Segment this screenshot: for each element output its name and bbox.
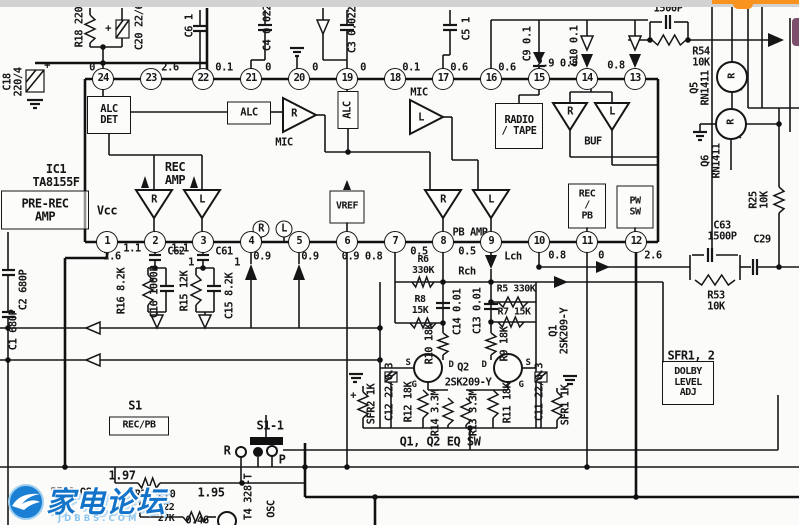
pin12-value: 2.6 [644, 250, 661, 261]
c3-label: C3 0.022 [347, 7, 358, 54]
pin19-value: 0 [360, 62, 366, 73]
pin-13: 13 [624, 68, 646, 90]
r11-label: R11 18K [502, 383, 513, 424]
s1-recpb-box: REC/PB [109, 417, 169, 436]
alc-det-box: ALC DET [87, 96, 131, 134]
value-197: 1.97 [109, 470, 136, 483]
dolby-box: DOLBY LEVEL ADJ [662, 361, 714, 405]
amp-mic-l-letter: L [418, 112, 424, 123]
pin10-value: 0.8 [548, 250, 565, 261]
rec-l-letter: L [199, 194, 205, 205]
q5-inner-letter: R [728, 73, 739, 79]
c14-label: C14 0.01 [452, 289, 463, 336]
pin-6: 6 [336, 231, 358, 253]
pin20-value: 0 [312, 62, 318, 73]
pin9-value: Lch [504, 251, 521, 262]
sfr2-plus: + [350, 390, 356, 401]
pin-2: 2 [144, 231, 166, 253]
buf-l-letter: L [609, 106, 615, 117]
r6-label: R6 330K [412, 255, 434, 277]
r7-label: R7 15K [497, 308, 530, 319]
browser-chrome-tab[interactable] [733, 0, 753, 9]
pin8-value: 0.5 [458, 246, 475, 257]
r25-label: R25 10K [749, 191, 772, 208]
pin13-value: 0.8 [607, 60, 624, 71]
value-195: 1.95 [198, 487, 225, 500]
radio-tape-box: RADIO / TAPE [495, 103, 543, 149]
c20-label: C20 22/6 [134, 4, 145, 51]
c61-value: 1 [234, 257, 240, 268]
c62-value: 1 [188, 257, 194, 268]
c2-label: C2 680P [18, 270, 29, 311]
pre-rec-amp-box: PRE-REC AMP [1, 191, 89, 230]
pin6-value: 0.9 0.8 [342, 251, 383, 262]
alc-box: ALC [227, 102, 271, 125]
r15-label: R15 12K [179, 271, 190, 312]
pin17-value: 0.6 [450, 62, 467, 73]
eq-sw-label: Q1, Q2 EQ SW [400, 436, 481, 449]
pin-8: 8 [432, 231, 454, 253]
pin11-value: 0 [598, 250, 604, 261]
q6-inner-letter: R [727, 119, 738, 125]
pin21-value: 0 [265, 62, 271, 73]
pin5-value: 0.9 [301, 251, 318, 262]
mic-r-label: MIC [275, 137, 292, 148]
c12-label: C12 22/6.3 [384, 363, 395, 421]
pin-15: 15 [528, 68, 550, 90]
r8-label: R8 15K [412, 295, 429, 317]
q2-part-label: 2SK209-Y [445, 377, 492, 388]
r53-label: R53 10K [707, 291, 724, 314]
q1-s-label: S [526, 359, 531, 369]
pin-20: 20 [288, 68, 310, 90]
rec-r-letter: R [151, 194, 157, 205]
s1-1-label: S1-1 [257, 420, 284, 433]
buf-label: BUF [584, 136, 601, 147]
vref-box: VREF [330, 191, 365, 224]
c18-label: C18 220/4 [3, 67, 26, 96]
c15-label: C15 8.2K [224, 273, 235, 320]
c29-label: C29 [753, 234, 770, 245]
pin-14: 14 [576, 68, 598, 90]
switch-r-label: R [224, 445, 231, 458]
r12-label: R12 18K [403, 382, 414, 423]
pin-22: 22 [192, 68, 214, 90]
pin-1: 1 [96, 231, 118, 253]
pb-r-letter: R [440, 194, 446, 205]
pin-19: 19 [336, 68, 358, 90]
buf-r-letter: R [567, 106, 573, 117]
c4-label: C4 0.022 [262, 5, 273, 52]
pin-16: 16 [480, 68, 502, 90]
q6-label: Q6 RN1411 [701, 144, 724, 179]
alc-vbox: ALC [338, 91, 359, 129]
scan-edge-band [0, 0, 799, 7]
c20-plus: + [105, 23, 111, 34]
c13-label: C13 0.01 [472, 288, 483, 335]
rec-amp-label: REC AMP [165, 161, 185, 187]
c9-label: C9 0.1 [522, 27, 533, 62]
r5-label: R5 330K [497, 285, 536, 296]
s1-label: S1 [128, 400, 141, 413]
osc-label: OSC [266, 500, 277, 517]
sfr1-label: SFR1 1K [560, 385, 571, 426]
t4-label: T4 328-T [243, 474, 254, 521]
pin-23: 23 [140, 68, 162, 90]
browser-chrome-bar[interactable] [712, 0, 799, 4]
pb-l-letter: L [488, 194, 494, 205]
q2-label: Q2 [457, 362, 469, 373]
schematic-page: R18 220C20 22/6+C18 220/4+C6 1C4 0.022C3… [0, 0, 799, 525]
watermark-text: 家电论坛 [46, 488, 166, 517]
amp-mic-r-letter: R [291, 108, 297, 119]
watermark-logo-icon [6, 482, 46, 522]
q1-label: Q1 2SK209-Y [549, 308, 572, 355]
r9-label: R9 18K [499, 327, 510, 362]
c18-plus: + [44, 60, 50, 71]
q5-label: Q5 RN1411 [690, 71, 713, 106]
r54-label: R54 10K [692, 47, 709, 70]
pin-18: 18 [384, 68, 406, 90]
pin4-value: 0.9 [253, 251, 270, 262]
pin-17: 17 [432, 68, 454, 90]
pin-11: 11 [576, 231, 598, 253]
pw-sw-box: PW SW [617, 186, 654, 229]
q2-s-label: S [406, 359, 411, 369]
q2-d-label: D [449, 361, 454, 371]
watermark: 家电论坛 JDBBS.COM [6, 482, 166, 522]
value-046: 0.46 [185, 515, 208, 525]
rch-label: Rch [458, 266, 475, 277]
pin-4: 4 [240, 231, 262, 253]
pin18-value: 0.1 [402, 62, 419, 73]
rec-pb-box: REC / PB [568, 184, 606, 229]
schematic-labels-layer: R18 220C20 22/6+C18 220/4+C6 1C4 0.022C3… [0, 0, 799, 525]
pin1-value: 2.6 [103, 251, 120, 262]
pin1-2-value: 1.1 [123, 243, 140, 254]
r18-label: R18 220 [74, 7, 85, 48]
c6-label: C6 1 [184, 14, 195, 37]
c1-label: C1 680P [8, 310, 19, 351]
pin16-value: 0.6 [498, 62, 515, 73]
watermark-subtext: JDBBS.COM [58, 514, 139, 524]
switch-p-label: P [279, 454, 286, 467]
r10-label: R10 18K [424, 324, 435, 365]
pin-12: 12 [625, 231, 647, 253]
pin-3: 3 [192, 231, 214, 253]
pin-21: 21 [240, 68, 262, 90]
r13-label: R13 3.3M [468, 390, 479, 437]
vcc-label: Vcc [97, 205, 117, 218]
c5-label: C5 1 [461, 17, 472, 40]
c11-label: C11 22/6.3 [534, 363, 545, 421]
q1-g-label: G [519, 381, 524, 391]
pin-10: 10 [528, 231, 550, 253]
sfr2-label: SFR2 1K [366, 384, 377, 425]
r16-label: R16 8.2K [116, 268, 127, 315]
c61-label: C61 [215, 246, 232, 257]
pin23-value: 2.6 [161, 62, 178, 73]
q1-d-label: D [482, 361, 487, 371]
ic1-label: IC1 TA8155F [32, 163, 79, 189]
pin-5: 5 [288, 231, 310, 253]
c62-label: C62 [167, 246, 184, 257]
pin22-value: 0.1 [215, 62, 232, 73]
pin-9: 9 [480, 231, 502, 253]
side-scroll-tab[interactable] [792, 18, 799, 46]
pin-7: 7 [384, 231, 406, 253]
c63-label: C63 1500P [707, 221, 736, 244]
c16-label: C16 1000P [149, 266, 160, 318]
pin-24: 24 [92, 68, 114, 90]
mic-l-label: MIC [410, 87, 427, 98]
r14-label: R14 3.3M [430, 390, 441, 437]
